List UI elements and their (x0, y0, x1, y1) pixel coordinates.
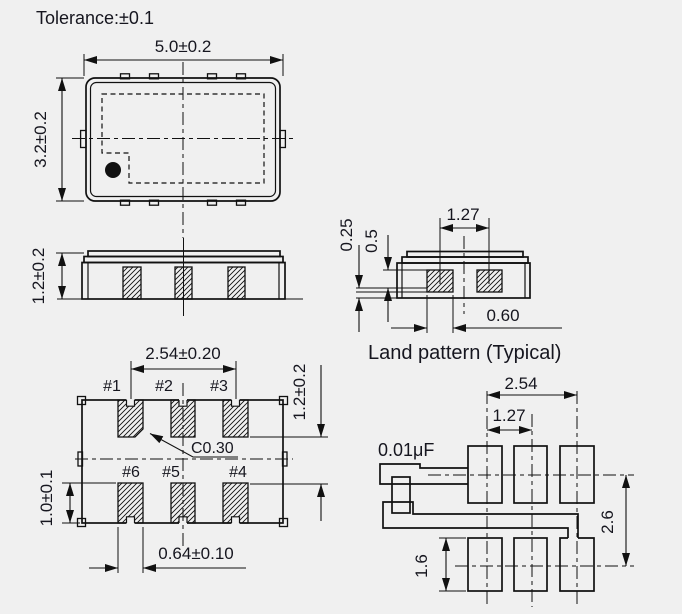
terminal-pad-section (123, 267, 141, 299)
bottom-view: #1 #2 #3 #6 #5 #4 C0.30 2.54±0.20 1.2±0.… (37, 344, 328, 573)
capacitor-land-2-ground-trace (383, 502, 578, 538)
extension-lines (250, 437, 328, 484)
pad-label-3: #3 (210, 378, 228, 395)
pad-label-5: #5 (162, 464, 180, 481)
capacitor-body-outline (392, 477, 410, 513)
mount-side-view: 0.5 0.25 1.27 0.60 Land pattern (Typical… (337, 205, 562, 364)
chamfer-dimension: C0.30 (191, 440, 234, 457)
pad-width-dimension: 0.60 (486, 306, 519, 325)
land-height-dimension: 0.5 (362, 229, 381, 253)
height-dimension: 3.2±0.2 (31, 111, 50, 168)
land-height-dimension: 1.6 (412, 554, 431, 578)
land-bottom-1 (468, 538, 502, 591)
outer-pitch-dimension: 2.54 (504, 374, 537, 393)
extension-lines (118, 527, 143, 573)
pitch-dimension: 1.27 (492, 406, 525, 425)
land-clearance-dimension: 0.25 (337, 218, 356, 251)
pad-width-dimension: 0.64±0.10 (158, 544, 234, 563)
extension-lines (427, 295, 453, 333)
pad-label-4: #4 (229, 464, 247, 481)
package-dimension-drawing: Tolerance:±0.1 5.0±0.2 3.2±0.2 (0, 0, 682, 609)
thickness-dimension: 1.2±0.2 (29, 248, 48, 305)
capacitor-land-1-trace (380, 464, 468, 484)
pad-label-1: #1 (103, 378, 121, 395)
pitch-dimension: 2.54±0.20 (145, 344, 221, 363)
capacitor-value-label: 0.01μF (378, 440, 434, 460)
top-view: 5.0±0.2 3.2±0.2 (31, 37, 297, 238)
extension-lines (56, 78, 84, 201)
land-reference-lines (356, 270, 427, 298)
land-pattern-view: 2.54 1.27 2.6 1.6 0.01μF (378, 374, 634, 607)
pad-height-dimension: 1.0±0.1 (37, 470, 56, 527)
extension-lines (439, 538, 466, 591)
tolerance-note: Tolerance:±0.1 (36, 8, 154, 28)
row-pitch-dimension: 2.6 (598, 510, 617, 534)
land-bottom-2 (514, 538, 547, 591)
width-dimension: 5.0±0.2 (155, 37, 212, 56)
row-gap-dimension: 1.2±0.2 (290, 364, 309, 421)
land-pattern-caption: Land pattern (Typical) (368, 342, 561, 364)
pad-label-6: #6 (122, 464, 140, 481)
lid-step-profile (402, 257, 528, 263)
side-view: 1.2±0.2 (29, 238, 303, 316)
terminal-pad-section (228, 267, 245, 299)
pitch-dimension: 1.27 (446, 205, 479, 224)
pad-label-2: #2 (155, 378, 173, 395)
pin1-marker-dot (105, 162, 121, 178)
